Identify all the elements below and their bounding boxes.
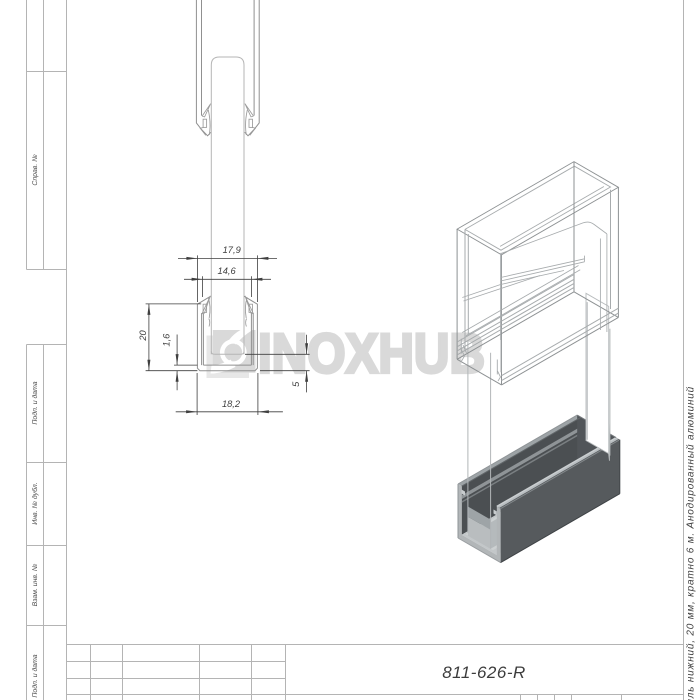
svg-text:1,6: 1,6 <box>162 333 172 347</box>
svg-text:811-626-R: 811-626-R <box>442 663 526 682</box>
svg-text:5: 5 <box>291 381 301 387</box>
svg-text:17,9: 17,9 <box>223 245 241 255</box>
svg-text:Подп. и дата: Подп. и дата <box>32 654 39 697</box>
svg-text:Профиль нижний, 20 мм, кратно: Профиль нижний, 20 мм, кратно 6 м. Аноди… <box>685 386 697 700</box>
svg-text:Взам. инв. №: Взам. инв. № <box>32 563 39 606</box>
svg-text:14,6: 14,6 <box>218 266 237 276</box>
svg-text:Инв. № дубл.: Инв. № дубл. <box>31 482 39 524</box>
svg-text:Справ. №: Справ. № <box>32 154 39 186</box>
svg-text:20: 20 <box>138 330 148 342</box>
svg-text:Подп. и дата: Подп. и дата <box>32 381 39 424</box>
svg-text:INOXHUB: INOXHUB <box>258 322 485 385</box>
svg-text:18,2: 18,2 <box>222 399 241 409</box>
